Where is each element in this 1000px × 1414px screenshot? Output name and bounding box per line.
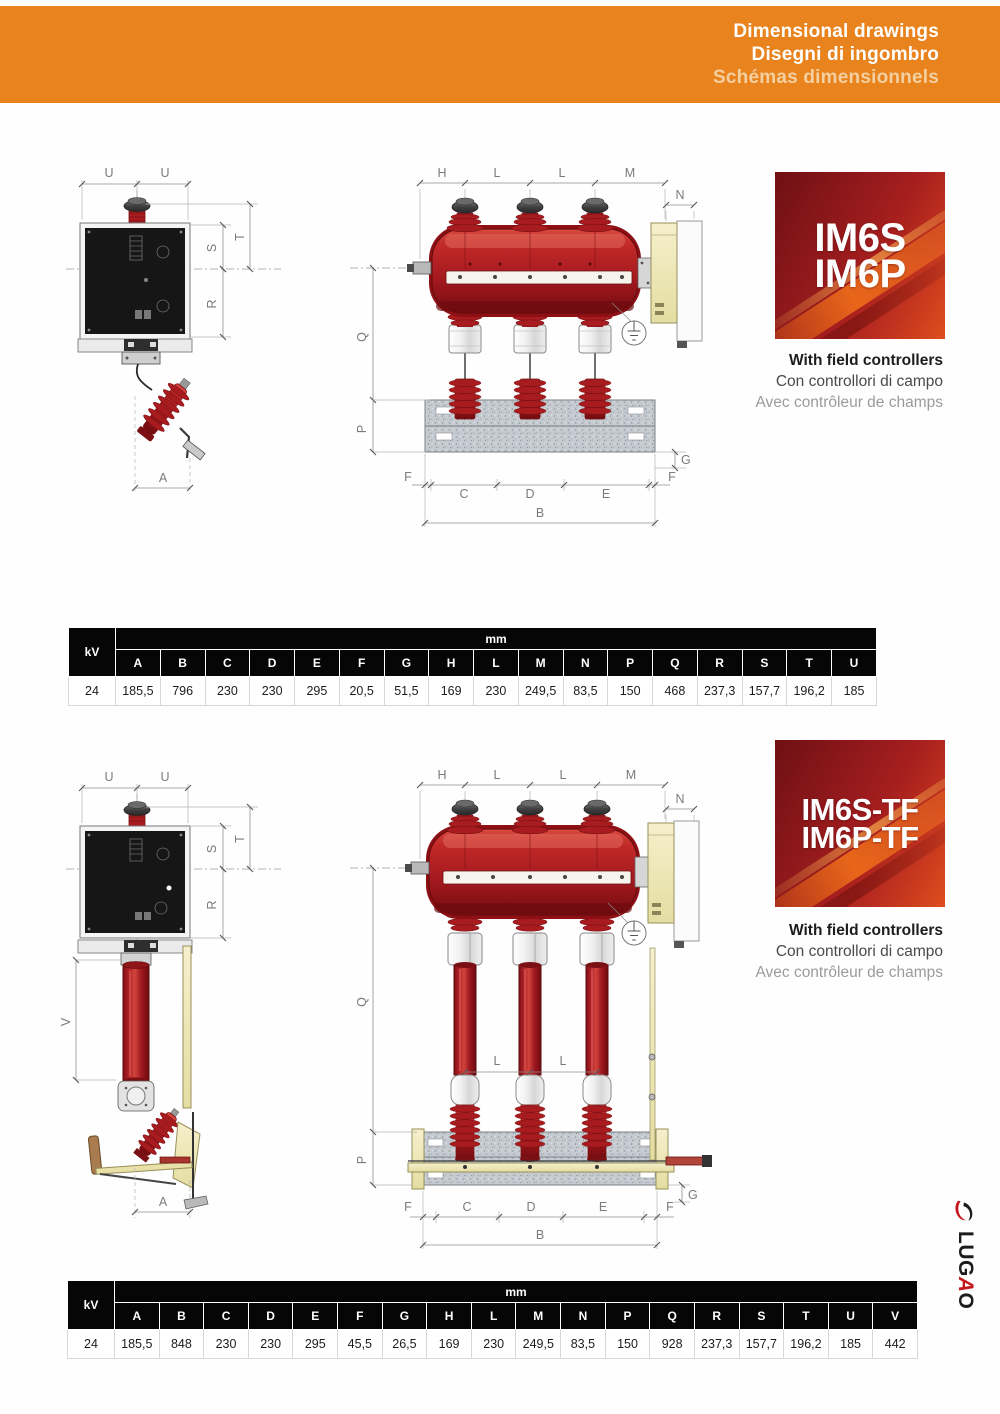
table-header-cell: H bbox=[427, 1303, 472, 1330]
header-title-it: Disegni di ingombro bbox=[752, 43, 939, 66]
table-cell: 295 bbox=[293, 1330, 338, 1359]
table-row: 24185,584823023029545,526,5169230249,583… bbox=[68, 1330, 918, 1359]
dim-label-u2: U bbox=[160, 166, 169, 180]
table-header-cell: B bbox=[160, 650, 205, 677]
dim-label-q: Q bbox=[355, 332, 369, 342]
switch-body bbox=[407, 225, 641, 317]
dim-label-n: N bbox=[675, 792, 684, 806]
table-header-cell: D bbox=[250, 650, 295, 677]
dim-label-q: Q bbox=[355, 997, 369, 1007]
table-cell: 295 bbox=[295, 677, 340, 706]
lugao-logo-icon bbox=[952, 1198, 978, 1224]
table-header-cell: E bbox=[293, 1303, 338, 1330]
table-header-cell: C bbox=[204, 1303, 249, 1330]
v-dimension: V bbox=[59, 960, 121, 1080]
dim-label-f2: F bbox=[668, 470, 676, 484]
table-header-cell: R bbox=[694, 1303, 739, 1330]
header-title-en: Dimensional drawings bbox=[733, 20, 939, 43]
lugao-logo-text: LUGAO bbox=[953, 1231, 977, 1309]
table-cell: 26,5 bbox=[382, 1330, 427, 1359]
table-header-cell: E bbox=[295, 650, 340, 677]
dim-label-l1: L bbox=[494, 768, 501, 782]
dim-label-g: G bbox=[681, 453, 691, 467]
top-bushings bbox=[447, 198, 613, 232]
dim-label-m: M bbox=[625, 166, 635, 180]
dim-label-r: R bbox=[205, 299, 219, 308]
table-cell: 442 bbox=[873, 1330, 918, 1359]
table-cell: 237,3 bbox=[697, 677, 742, 706]
dim-label-t: T bbox=[233, 233, 247, 241]
caption-im6: With field controllers Con controllori d… bbox=[663, 350, 943, 413]
dim-label-d: D bbox=[526, 1200, 535, 1214]
table-header-cell: N bbox=[561, 1303, 606, 1330]
table-cell: 928 bbox=[650, 1330, 695, 1359]
dim-label-h: H bbox=[437, 166, 446, 180]
table-cell: 83,5 bbox=[561, 1330, 606, 1359]
table-header-cell: A bbox=[116, 650, 161, 677]
dim-label-h: H bbox=[437, 768, 446, 782]
table-header-cell: H bbox=[429, 650, 474, 677]
badge-model-line2: IM6P bbox=[814, 256, 905, 292]
badge-model-line2: IM6P-TF bbox=[801, 824, 918, 852]
datasheet-page: Dimensional drawings Disegni di ingombro… bbox=[0, 0, 1000, 1414]
right-g-dimension: G bbox=[655, 452, 691, 468]
table-cell: 249,5 bbox=[516, 1330, 561, 1359]
dim-label-a: A bbox=[159, 471, 168, 485]
table-header-cell: B bbox=[159, 1303, 204, 1330]
dim-label-d: D bbox=[525, 487, 534, 501]
table-header-cell: C bbox=[205, 650, 250, 677]
table-header-cell: T bbox=[784, 1303, 829, 1330]
table-header-cell: G bbox=[382, 1303, 427, 1330]
table-cell: 157,7 bbox=[742, 677, 787, 706]
table-header-cell: P bbox=[605, 1303, 650, 1330]
dim-label-f1: F bbox=[404, 470, 412, 484]
dim-label-t: T bbox=[233, 835, 247, 843]
table-cell: 185,5 bbox=[116, 677, 161, 706]
table-header-cell: T bbox=[787, 650, 832, 677]
dim-label-c: C bbox=[459, 487, 468, 501]
table-row: ABCDEFGHLMNPQRSTUV bbox=[68, 1303, 918, 1330]
dim-label-e: E bbox=[602, 487, 610, 501]
base-mechanism bbox=[78, 339, 192, 390]
dim-label-p: P bbox=[355, 425, 369, 433]
table-row: kVmm bbox=[69, 628, 877, 650]
top-bushings bbox=[447, 800, 615, 834]
table-header-cell: M bbox=[516, 1303, 561, 1330]
table-header-cell: mm bbox=[116, 628, 877, 650]
front-view-drawing-im6tf: H L L M N bbox=[350, 757, 720, 1257]
dim-label-r: R bbox=[205, 900, 219, 909]
table-header-cell: kV bbox=[68, 1281, 115, 1330]
control-panel bbox=[80, 826, 190, 938]
caption-it: Con controllori di campo bbox=[663, 941, 943, 962]
dim-label-s: S bbox=[205, 244, 219, 252]
table-cell: 249,5 bbox=[518, 677, 563, 706]
table-header-cell: kV bbox=[69, 628, 116, 677]
dim-label-l3: L bbox=[494, 1054, 501, 1068]
bottom-housing bbox=[118, 1081, 154, 1111]
fuse-tubes bbox=[448, 933, 614, 1162]
table-cell: 20,5 bbox=[339, 677, 384, 706]
page-header: Dimensional drawings Disegni di ingombro… bbox=[0, 6, 1000, 103]
table-cell: 24 bbox=[68, 1330, 115, 1359]
table-header-cell: Q bbox=[650, 1303, 695, 1330]
fuse-tube bbox=[121, 953, 151, 1085]
dim-label-b: B bbox=[536, 1228, 544, 1242]
table-header-cell: P bbox=[608, 650, 653, 677]
dim-label-m: M bbox=[626, 768, 636, 782]
table-cell: 24 bbox=[69, 677, 116, 706]
table-cell: 230 bbox=[471, 1330, 516, 1359]
dim-label-c: C bbox=[462, 1200, 471, 1214]
table-cell: 83,5 bbox=[563, 677, 608, 706]
white-insulators bbox=[449, 325, 611, 353]
top-bushing bbox=[124, 802, 150, 829]
dim-label-g: G bbox=[688, 1188, 698, 1202]
left-dimensions: Q P bbox=[355, 868, 417, 1185]
base-strip bbox=[78, 940, 192, 953]
table-header-cell: A bbox=[115, 1303, 160, 1330]
caption-it: Con controllori di campo bbox=[663, 371, 943, 392]
table-header-cell: N bbox=[563, 650, 608, 677]
dim-label-p: P bbox=[355, 1156, 369, 1164]
table-cell: 51,5 bbox=[384, 677, 429, 706]
table-cell: 169 bbox=[427, 1330, 472, 1359]
table-cell: 45,5 bbox=[338, 1330, 383, 1359]
table-header-cell: U bbox=[832, 650, 877, 677]
lower-insulators bbox=[449, 353, 611, 419]
table-cell: 185 bbox=[828, 1330, 873, 1359]
table-header-cell: G bbox=[384, 650, 429, 677]
dim-label-u1: U bbox=[104, 770, 113, 784]
top-bushing bbox=[124, 198, 150, 226]
table-cell: 237,3 bbox=[694, 1330, 739, 1359]
table-row: kVmm bbox=[68, 1281, 918, 1303]
table-header-cell: Q bbox=[653, 650, 698, 677]
table-cell: 848 bbox=[159, 1330, 204, 1359]
table-cell: 185 bbox=[832, 677, 877, 706]
switch-body bbox=[405, 825, 640, 919]
table-row: 24185,579623023029520,551,5169230249,583… bbox=[69, 677, 877, 706]
bottom-dimensions: F C D E F B bbox=[404, 454, 676, 527]
dim-label-l2: L bbox=[560, 768, 567, 782]
table-cell: 185,5 bbox=[115, 1330, 160, 1359]
table-cell: 230 bbox=[204, 1330, 249, 1359]
table-header-cell: S bbox=[739, 1303, 784, 1330]
logo-text-suffix: O bbox=[954, 1293, 977, 1310]
table-cell: 230 bbox=[205, 677, 250, 706]
control-panel bbox=[80, 223, 190, 339]
bottom-dimensions: F C D E F B bbox=[404, 1191, 674, 1249]
side-view-drawing-im6: U U S bbox=[66, 160, 281, 508]
dim-label-u1: U bbox=[104, 166, 113, 180]
table-cell: 230 bbox=[474, 677, 519, 706]
table-header-cell: L bbox=[471, 1303, 516, 1330]
model-badge-im6: IM6S IM6P bbox=[775, 172, 945, 339]
table-header-cell: U bbox=[828, 1303, 873, 1330]
dim-label-n: N bbox=[675, 188, 684, 202]
dim-label-e: E bbox=[599, 1200, 607, 1214]
caption-en: With field controllers bbox=[663, 920, 943, 941]
yellow-cross-bar bbox=[408, 1161, 674, 1172]
table-cell: 230 bbox=[250, 677, 295, 706]
caption-en: With field controllers bbox=[663, 350, 943, 371]
logo-text-prefix: LUG bbox=[954, 1231, 977, 1277]
table-cell: 150 bbox=[605, 1330, 650, 1359]
logo-text-accent: A bbox=[954, 1277, 977, 1293]
table-cell: 150 bbox=[608, 677, 653, 706]
model-badge-im6tf: IM6S-TF IM6P-TF bbox=[775, 740, 945, 907]
side-view-drawing-im6tf: U U S bbox=[66, 760, 281, 1232]
table-header-cell: V bbox=[873, 1303, 918, 1330]
table-cell: 468 bbox=[653, 677, 698, 706]
badge-model-line1: IM6S bbox=[814, 220, 905, 256]
left-dimensions: Q P bbox=[355, 268, 430, 452]
dimensions-table-im6: kVmmABCDEFGHLMNPQRSTU24185,5796230230295… bbox=[68, 627, 877, 706]
table-header-cell: D bbox=[248, 1303, 293, 1330]
table-header-cell: M bbox=[518, 650, 563, 677]
table-header-cell: L bbox=[474, 650, 519, 677]
dim-label-a: A bbox=[159, 1195, 168, 1209]
dim-label-s: S bbox=[205, 845, 219, 853]
dim-label-u2: U bbox=[160, 770, 169, 784]
table-cell: 796 bbox=[160, 677, 205, 706]
table-cell: 196,2 bbox=[787, 677, 832, 706]
table-header-cell: mm bbox=[115, 1281, 918, 1303]
dim-label-b: B bbox=[536, 506, 544, 520]
dim-label-v: V bbox=[59, 1017, 73, 1026]
mounting-bracket bbox=[180, 428, 205, 460]
dimensions-table-im6tf: kVmmABCDEFGHLMNPQRSTUV24185,584823023029… bbox=[67, 1280, 918, 1359]
lugao-logo: LUGAO bbox=[942, 1198, 988, 1326]
release-handle bbox=[666, 1155, 712, 1167]
dim-label-f1: F bbox=[404, 1200, 412, 1214]
table-cell: 169 bbox=[429, 677, 474, 706]
table-cell: 157,7 bbox=[739, 1330, 784, 1359]
dim-label-l4: L bbox=[560, 1054, 567, 1068]
caption-im6tf: With field controllers Con controllori d… bbox=[663, 920, 943, 983]
control-box bbox=[635, 821, 699, 1160]
dim-label-l2: L bbox=[559, 166, 566, 180]
caption-fr: Avec contrôleur de champs bbox=[663, 962, 943, 983]
dim-label-l1: L bbox=[494, 166, 501, 180]
operating-rod bbox=[183, 946, 191, 1108]
table-header-cell: S bbox=[742, 650, 787, 677]
front-view-drawing-im6: H L L M N bbox=[350, 155, 710, 545]
table-header-cell: F bbox=[339, 650, 384, 677]
table-header-cell: F bbox=[338, 1303, 383, 1330]
table-header-cell: R bbox=[697, 650, 742, 677]
table-cell: 196,2 bbox=[784, 1330, 829, 1359]
caption-fr: Avec contrôleur de champs bbox=[663, 392, 943, 413]
control-box bbox=[638, 221, 702, 348]
table-cell: 230 bbox=[248, 1330, 293, 1359]
dim-label-f2: F bbox=[666, 1200, 674, 1214]
header-title-fr: Schémas dimensionnels bbox=[713, 66, 939, 89]
table-row: ABCDEFGHLMNPQRSTU bbox=[69, 650, 877, 677]
